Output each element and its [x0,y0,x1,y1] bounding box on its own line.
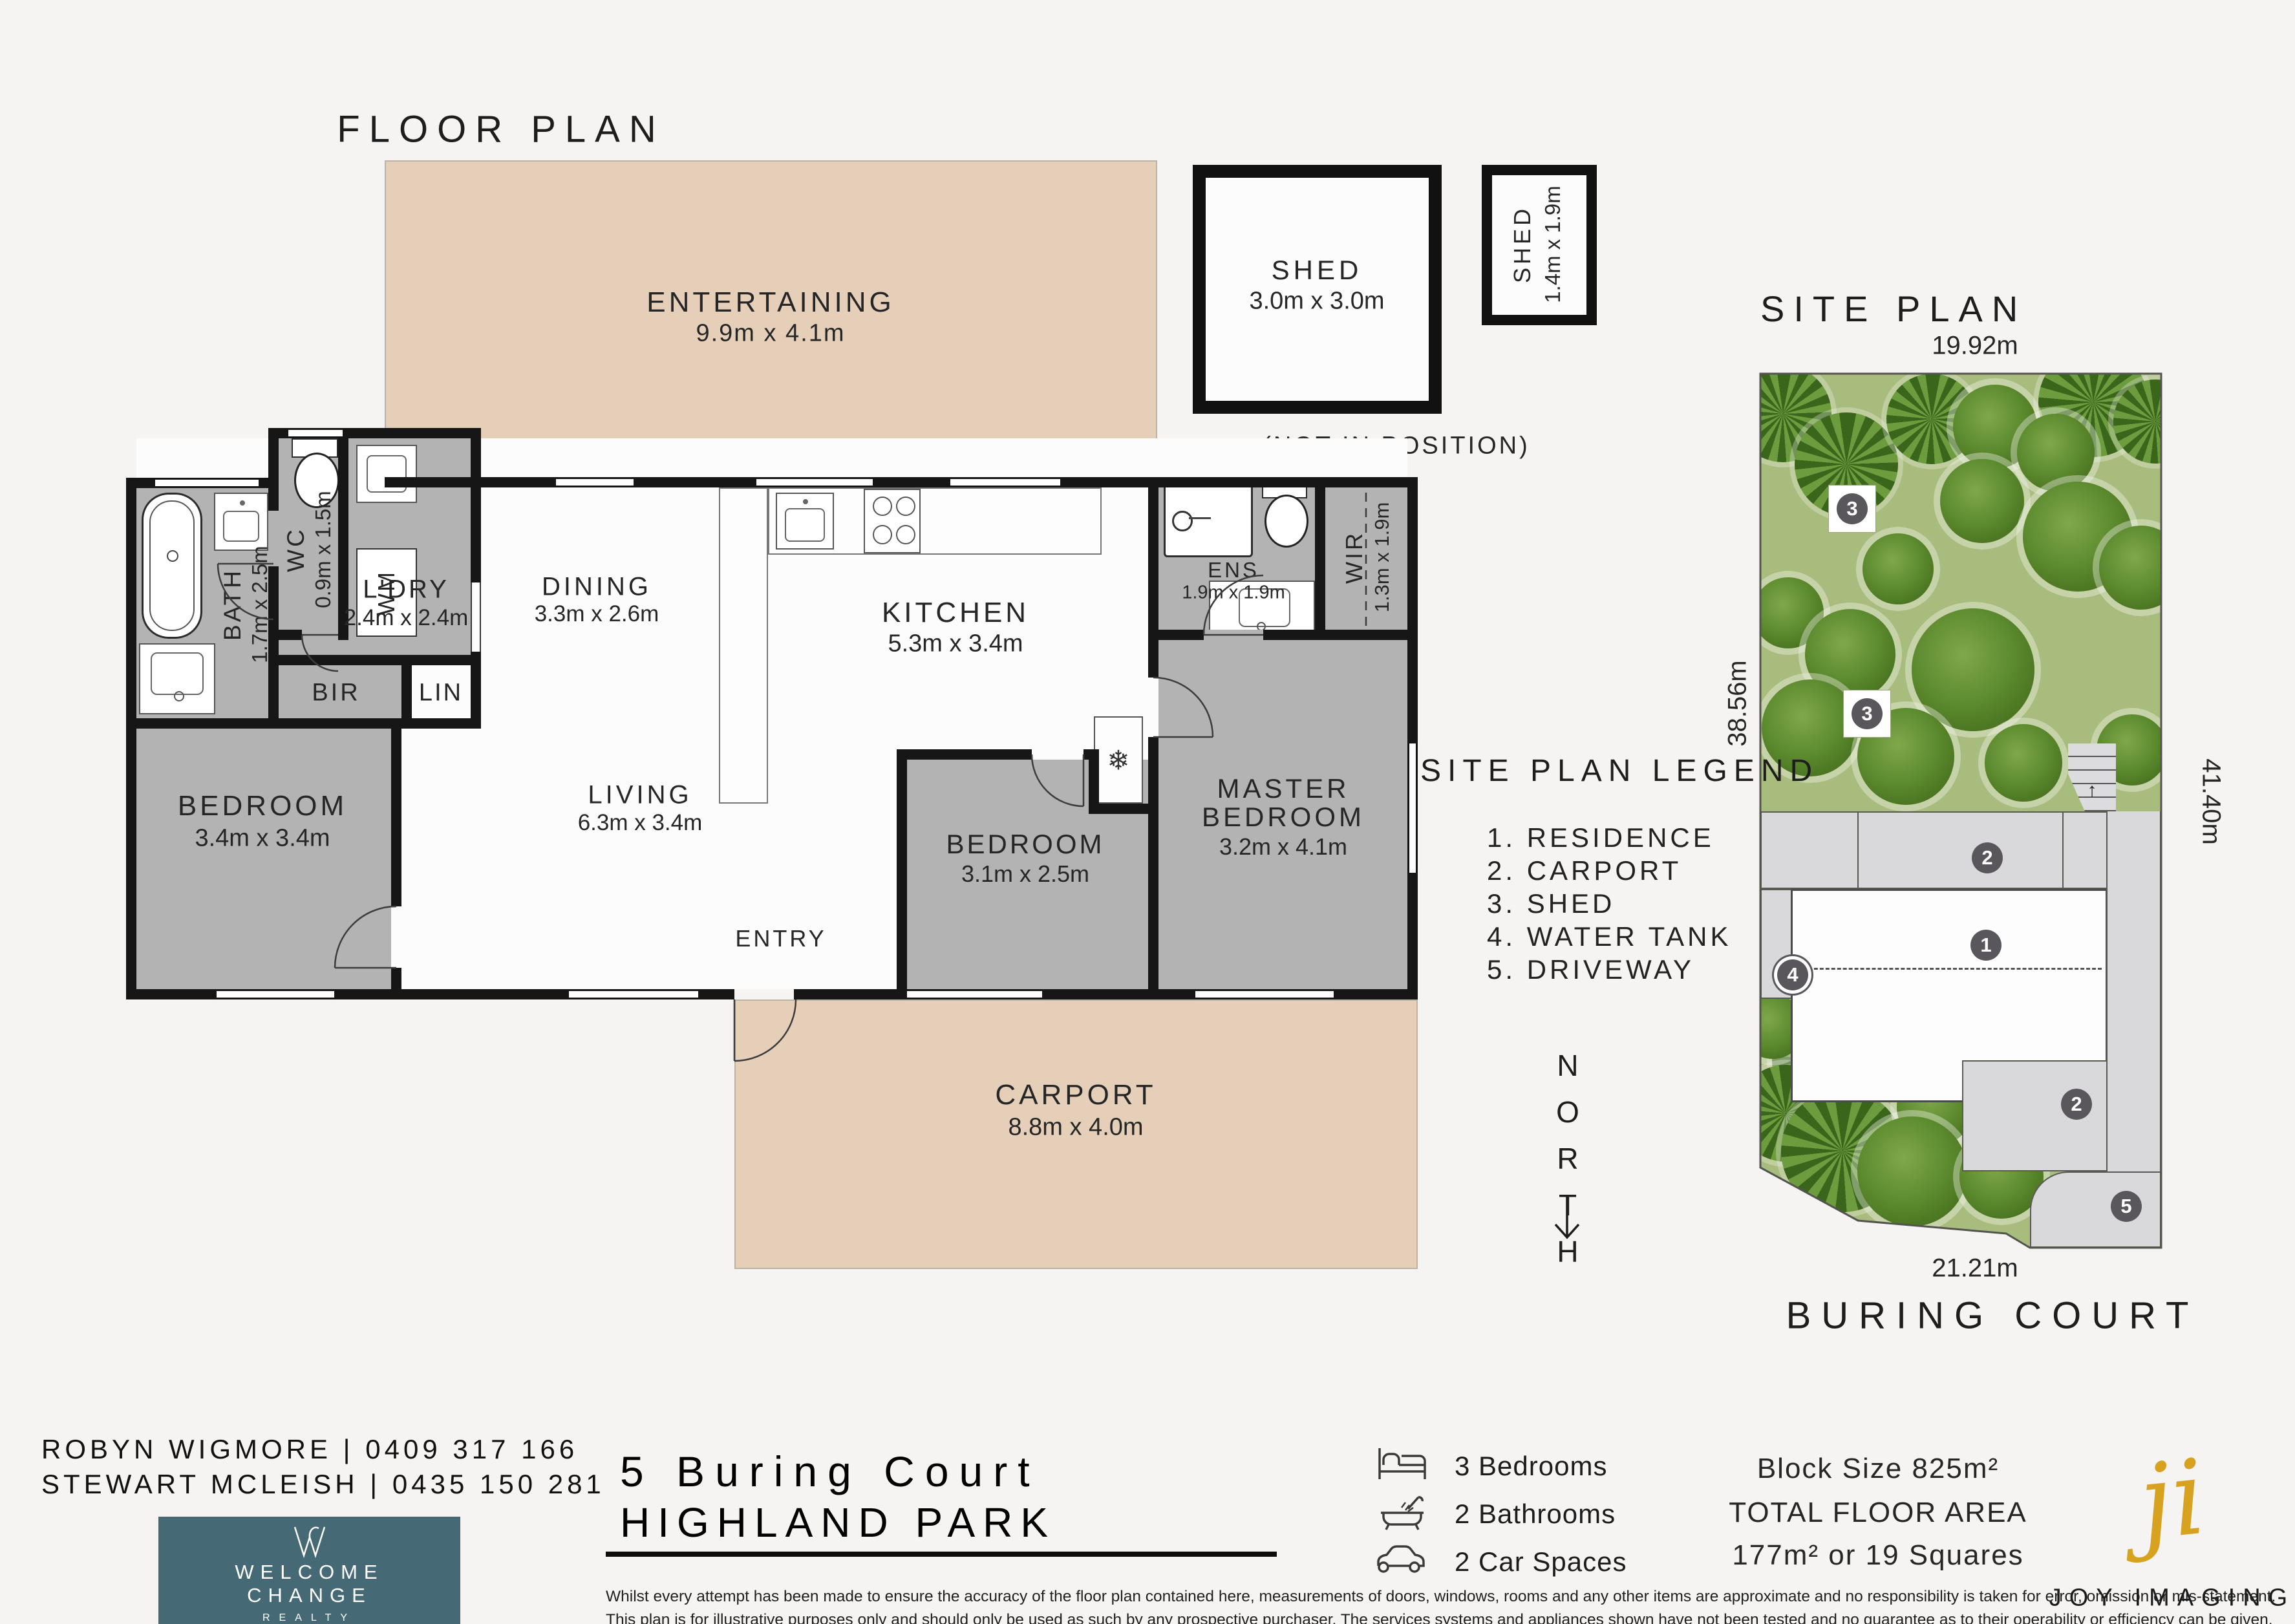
agency-name-1: WELCOME [235,1561,383,1584]
floorplan-page: FLOOR PLAN ENTERTAINING 9.9m x 4.1m SHED… [0,0,2295,1624]
bed-icon [1376,1446,1429,1483]
agent-2: STEWART MCLEISH | 0435 150 281 [41,1469,605,1500]
disclaimer-line-1: Whilst every attempt has been made to en… [606,1585,2287,1608]
door-arcs-overlay [0,0,2295,1624]
agency-logo: WELCOME CHANGE REALTY [158,1517,460,1624]
total-floor-area-value: 177m² or 19 Squares [1732,1539,2023,1572]
address-underline [606,1552,1277,1557]
address-line-1: 5 Buring Court [620,1447,1040,1496]
agency-name-3: REALTY [262,1612,356,1624]
feature-bathrooms: 2 Bathrooms [1455,1499,1616,1530]
disclaimer-line-2: This plan is for illustrative purposes o… [606,1608,2287,1624]
bath-icon [1376,1492,1429,1532]
total-floor-area-title: TOTAL FLOOR AREA [1729,1497,2027,1529]
agency-name-2: CHANGE [247,1584,372,1607]
agency-monogram-icon [281,1521,339,1561]
agent-1: ROBYN WIGMORE | 0409 317 166 [41,1434,578,1465]
block-size: Block Size 825m² [1757,1453,1999,1485]
feature-car-spaces: 2 Car Spaces [1455,1546,1627,1577]
joy-imaging-logo-icon: ji [2133,1437,2211,1564]
address-line-2: HIGHLAND PARK [620,1499,1056,1546]
car-icon [1373,1541,1431,1576]
feature-bedrooms: 3 Bedrooms [1455,1451,1607,1482]
